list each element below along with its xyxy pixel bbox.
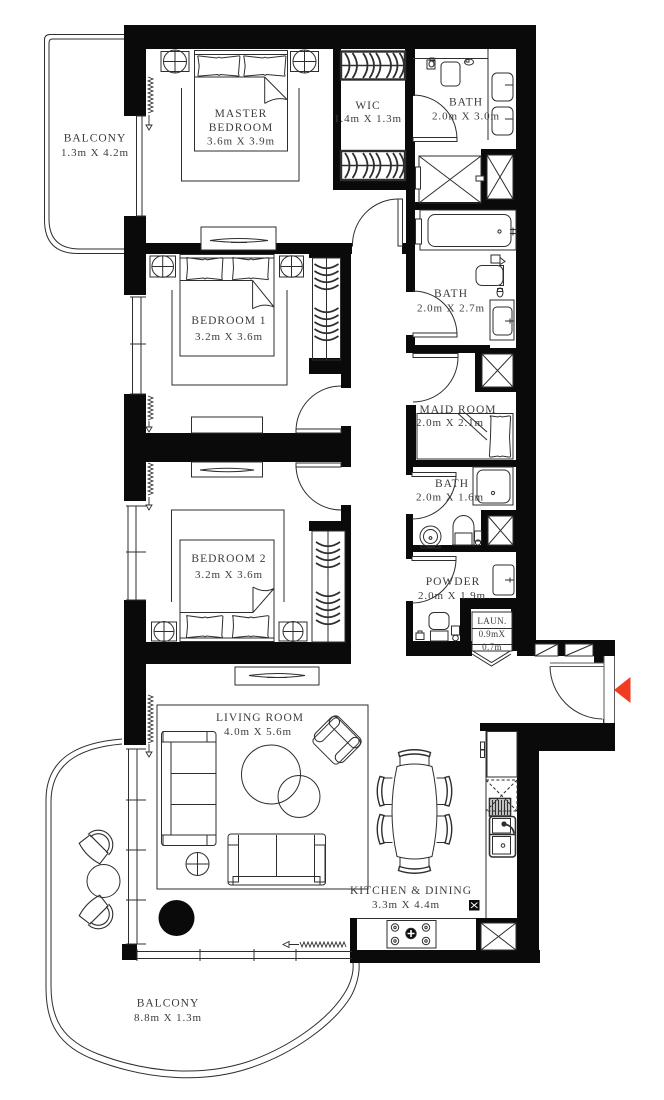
svg-text:3.2m X 3.6m: 3.2m X 3.6m [195, 331, 263, 343]
svg-text:4.0m X 5.6m: 4.0m X 5.6m [224, 726, 292, 738]
svg-text:1.4m X 1.3m: 1.4m X 1.3m [334, 113, 402, 125]
svg-text:2.0m X 3.0m: 2.0m X 3.0m [432, 111, 500, 123]
svg-text:MASTER: MASTER [215, 108, 268, 120]
svg-text:WIC: WIC [355, 100, 380, 112]
svg-text:2.0m X 1.6m: 2.0m X 1.6m [416, 492, 484, 504]
svg-text:LIVING ROOM: LIVING ROOM [216, 712, 304, 724]
svg-text:LAUN.: LAUN. [477, 616, 506, 626]
svg-text:MAID ROOM: MAID ROOM [419, 404, 496, 416]
svg-text:POWDER: POWDER [426, 576, 481, 588]
svg-text:3.6m X 3.9m: 3.6m X 3.9m [207, 136, 275, 148]
svg-text:BEDROOM 2: BEDROOM 2 [191, 553, 266, 565]
svg-text:0.9mX: 0.9mX [479, 629, 506, 639]
svg-text:KITCHEN & DINING: KITCHEN & DINING [350, 885, 472, 897]
svg-text:0.7m: 0.7m [482, 642, 502, 652]
svg-text:BATH: BATH [434, 288, 468, 300]
svg-text:3.3m X 4.4m: 3.3m X 4.4m [372, 899, 440, 911]
svg-text:BEDROOM 1: BEDROOM 1 [191, 315, 266, 327]
svg-text:2.0m X 2.7m: 2.0m X 2.7m [417, 303, 485, 315]
svg-text:3.2m X 3.6m: 3.2m X 3.6m [195, 569, 263, 581]
svg-text:BALCONY: BALCONY [64, 133, 127, 145]
svg-text:BALCONY: BALCONY [137, 998, 200, 1010]
svg-text:BATH: BATH [449, 97, 483, 109]
svg-text:2.0m X 2.1m: 2.0m X 2.1m [416, 417, 484, 429]
svg-text:8.8m X 1.3m: 8.8m X 1.3m [134, 1012, 202, 1024]
svg-text:BATH: BATH [435, 478, 469, 490]
svg-text:1.3m X 4.2m: 1.3m X 4.2m [61, 147, 129, 159]
svg-text:BEDROOM: BEDROOM [209, 122, 274, 134]
svg-text:2.0m X 1.9m: 2.0m X 1.9m [418, 590, 486, 602]
